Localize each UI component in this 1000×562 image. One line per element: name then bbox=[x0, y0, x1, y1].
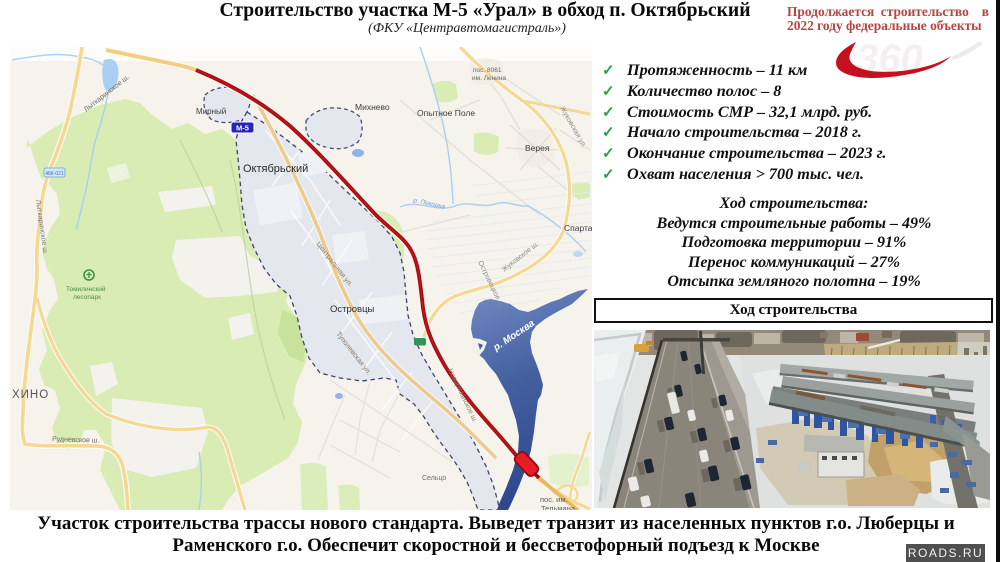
svg-text:Тельмана: Тельмана bbox=[541, 504, 576, 510]
svg-text:Мирный: Мирный bbox=[196, 107, 226, 116]
svg-text:Опытное Поле: Опытное Поле bbox=[417, 108, 475, 118]
svg-text:46К-021: 46К-021 bbox=[45, 171, 64, 177]
svg-text:Томилинский: Томилинский bbox=[66, 285, 106, 293]
svg-text:Михнево: Михнево bbox=[355, 102, 390, 112]
svg-text:Сельцо: Сельцо bbox=[422, 475, 446, 482]
svg-text:Спартак: Спартак bbox=[564, 223, 592, 233]
svg-text:пос. 8061: пос. 8061 bbox=[473, 67, 502, 74]
svg-text:им. Ленина: им. Ленина bbox=[472, 75, 506, 82]
svg-text:Октябрьский: Октябрьский bbox=[243, 163, 308, 175]
svg-text:Верея: Верея bbox=[525, 143, 550, 153]
svg-text:М-5: М-5 bbox=[236, 124, 249, 133]
svg-text:Островцы: Островцы bbox=[330, 304, 375, 315]
svg-text:лесопарк: лесопарк bbox=[73, 294, 101, 301]
svg-text:ХИНО: ХИНО bbox=[12, 389, 49, 401]
svg-text:пос. им.: пос. им. bbox=[540, 495, 568, 504]
